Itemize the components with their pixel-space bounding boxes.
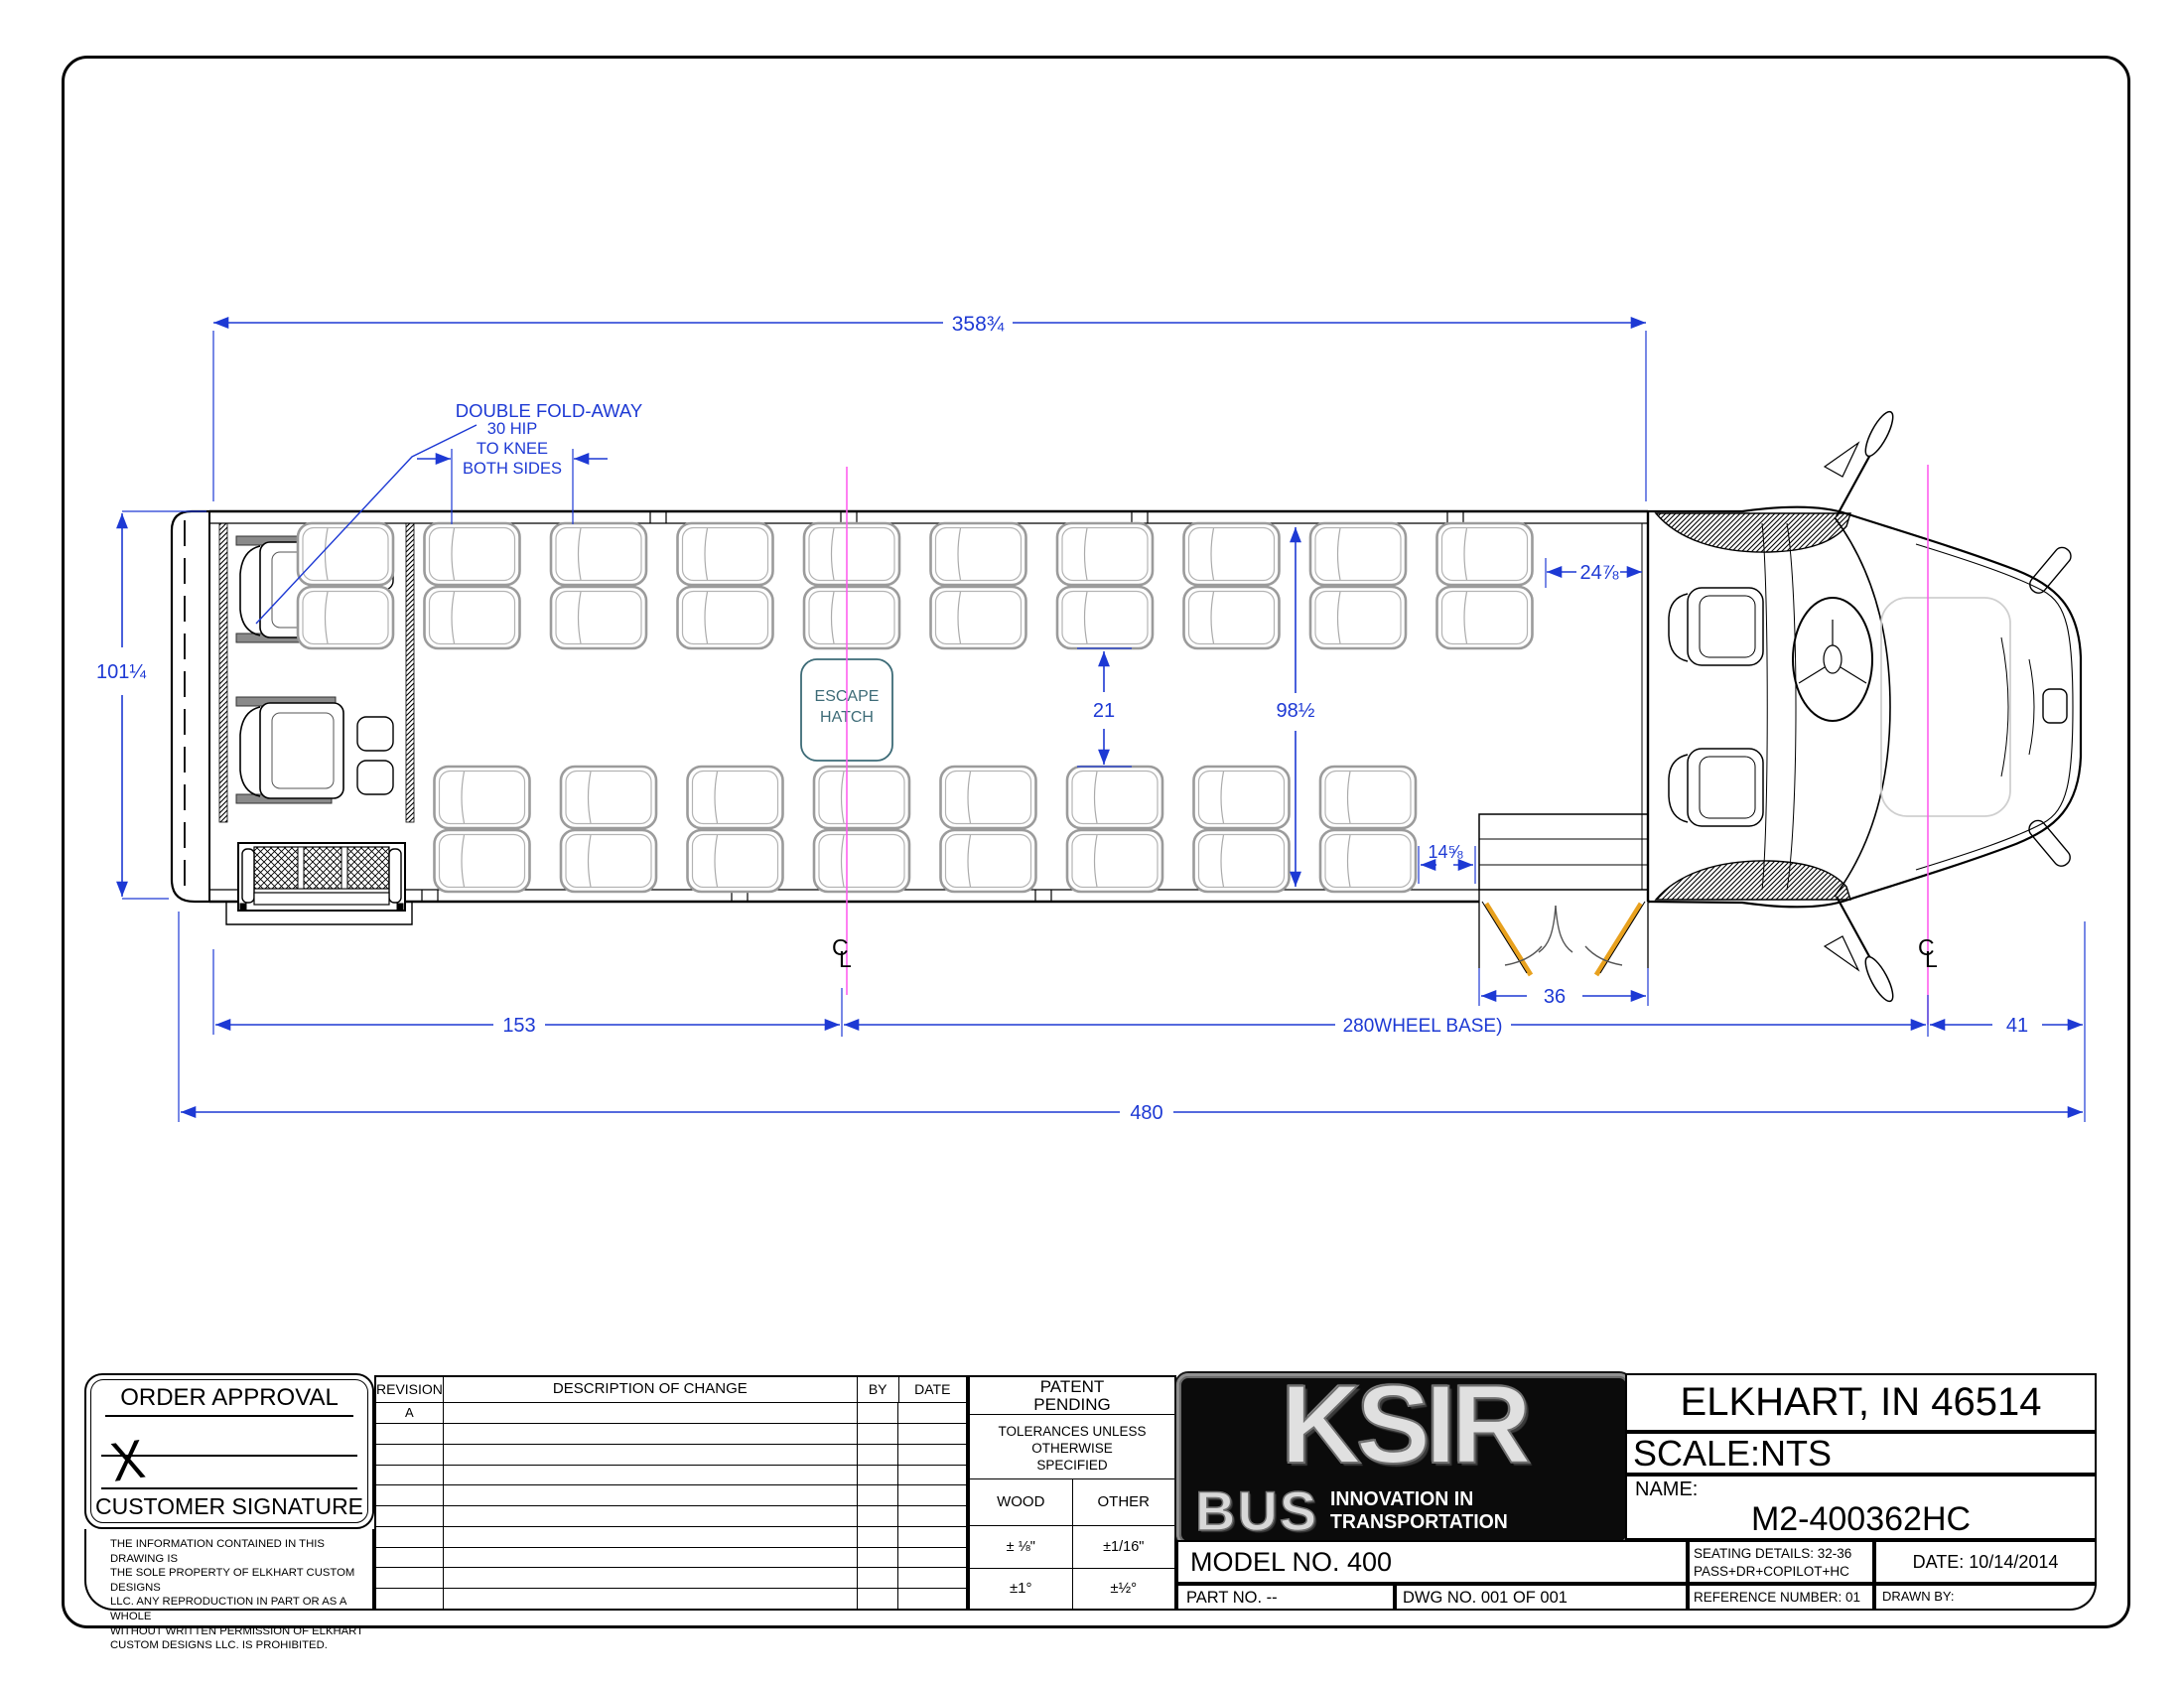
revision-table-header: REVISION DESCRIPTION OF CHANGE BY DATE [376, 1377, 966, 1403]
dim-body-length: 358¾ [952, 313, 1005, 336]
revision-row [376, 1527, 966, 1548]
passenger-seat-unit [1437, 523, 1533, 648]
signature-line [105, 1415, 353, 1417]
revision-cell [444, 1466, 858, 1485]
drawn-by-field: DRAWN BY: [1874, 1584, 2097, 1611]
revision-cell [376, 1445, 444, 1465]
dim-door-width: 36 [1544, 986, 1566, 1008]
other-angle-tolerance: ±½° [1073, 1569, 1175, 1609]
securement-track [406, 523, 414, 822]
disclaimer-line: LLC. ANY REPRODUCTION IN PART OR AS A WH… [110, 1595, 368, 1623]
revision-cell [898, 1527, 966, 1547]
order-approval-inner-border: ORDER APPROVAL X CUSTOMER SIGNATURE [90, 1379, 368, 1523]
revision-cell [898, 1445, 966, 1465]
cl-symbol: L [1925, 946, 1938, 972]
revision-table: REVISION DESCRIPTION OF CHANGE BY DATE A [374, 1375, 968, 1611]
wood-length-tolerance: ± ⅛" [970, 1526, 1073, 1568]
revision-cell [898, 1485, 966, 1505]
seating-details-line: SEATING DETAILS: 32-36 [1694, 1545, 1872, 1563]
drawing-name-value: M2-400362HC [1627, 1500, 2095, 1539]
ksir-bus-text: BUS [1195, 1478, 1318, 1543]
passenger-seat-unit [1057, 523, 1153, 648]
dim-overall-length: 480 [1130, 1102, 1162, 1124]
passenger-seat-unit [1194, 767, 1290, 892]
scale-field: SCALE:NTS [1625, 1432, 2097, 1475]
tolerance-line: TOLERANCES UNLESS [970, 1423, 1174, 1440]
revision-header-cell: DESCRIPTION OF CHANGE [444, 1377, 858, 1402]
revision-cell [444, 1548, 858, 1568]
tolerance-line: SPECIFIED [970, 1457, 1174, 1474]
revision-cell [376, 1589, 444, 1609]
seating-details: SEATING DETAILS: 32-36 PASS+DR+COPILOT+H… [1688, 1540, 1874, 1584]
ksir-brand-text: KSIR [1179, 1360, 1628, 1488]
revision-cell [858, 1466, 899, 1485]
cab-fairing-hatch [1656, 861, 1850, 900]
revision-cell [444, 1403, 858, 1423]
signature-line [101, 1487, 357, 1489]
rear-bumper [172, 511, 209, 902]
front-handle [2043, 689, 2067, 723]
revision-rows: A [376, 1403, 966, 1609]
revision-cell [858, 1445, 899, 1465]
wood-angle-tolerance: ±1° [970, 1569, 1073, 1609]
revision-cell [444, 1485, 858, 1505]
revision-cell [376, 1485, 444, 1505]
label-hip-to-knee: 30 HIP [487, 420, 537, 438]
signature-x-mark: X [107, 1427, 149, 1494]
centerline-symbols: C L C L [832, 934, 1938, 972]
passenger-seat-unit [804, 523, 899, 648]
revision-cell [898, 1466, 966, 1485]
passenger-seat-unit [551, 523, 646, 648]
tolerances-heading: TOLERANCES UNLESS OTHERWISE SPECIFIED [970, 1415, 1174, 1479]
other-length-tolerance: ±1/16" [1073, 1526, 1175, 1568]
revision-cell [898, 1403, 966, 1423]
disclaimer-note: THE INFORMATION CONTAINED IN THIS DRAWIN… [84, 1529, 374, 1611]
order-approval-title: ORDER APPROVAL [91, 1384, 367, 1412]
revision-cell [858, 1568, 899, 1588]
securement-track [219, 523, 227, 822]
passenger-seats [298, 523, 1533, 892]
tolerance-length-row: ± ⅛" ±1/16" [970, 1526, 1174, 1569]
revision-row [376, 1485, 966, 1506]
driver-seat [1669, 588, 1763, 665]
other-column-label: OTHER [1073, 1479, 1175, 1525]
revision-row: A [376, 1403, 966, 1424]
revision-row [376, 1424, 966, 1445]
cl-symbol: L [839, 946, 852, 972]
revision-cell [376, 1466, 444, 1485]
side-mirror [1825, 897, 1898, 1005]
revision-header-cell: BY [858, 1377, 899, 1402]
revision-header-cell: REVISION [376, 1377, 444, 1402]
revision-cell [858, 1506, 899, 1526]
passenger-seat-unit [931, 523, 1026, 648]
cab-outline [1648, 507, 2081, 908]
label-hip-to-knee: TO KNEE [477, 440, 548, 458]
revision-row [376, 1445, 966, 1466]
dim-wheelbase: 280WHEEL BASE) [1343, 1016, 1503, 1037]
passenger-seat-unit [1310, 523, 1406, 648]
passenger-seat-unit [425, 523, 520, 648]
revision-cell [376, 1424, 444, 1444]
revision-cell [444, 1424, 858, 1444]
door-swing-arcs [1505, 906, 1622, 965]
passenger-seat-unit [678, 523, 773, 648]
disclaimer-line: WITHOUT WRITTEN PERMISSION OF ELKHART [110, 1624, 368, 1639]
passenger-seat-unit [435, 767, 530, 892]
name-field: NAME: M2-400362HC [1625, 1475, 2097, 1540]
cab-fairing-hatch [1656, 513, 1850, 552]
revision-row [376, 1466, 966, 1486]
reference-number: REFERENCE NUMBER: 01 [1688, 1584, 1874, 1611]
patent-line: PENDING [970, 1396, 1174, 1414]
revision-cell [444, 1445, 858, 1465]
passenger-seat-unit [298, 523, 393, 648]
revision-row [376, 1568, 966, 1589]
entry-door [1479, 814, 1648, 975]
passenger-seat-unit [1184, 523, 1280, 648]
customer-signature-label: CUSTOMER SIGNATURE [91, 1493, 367, 1520]
name-label: NAME: [1635, 1478, 1698, 1501]
revision-cell [376, 1527, 444, 1547]
tolerance-columns: WOOD OTHER [970, 1479, 1174, 1526]
steering-wheel [1793, 598, 1872, 721]
revision-row [376, 1506, 966, 1527]
passenger-seat-unit [1067, 767, 1162, 892]
revision-cell [376, 1548, 444, 1568]
copilot-seat [1669, 749, 1763, 826]
label-double-fold-away: DOUBLE FOLD-AWAY [456, 400, 642, 421]
date-field: DATE: 10/14/2014 [1874, 1540, 2097, 1584]
ksir-logo: KSIR BUS INNOVATION IN TRANSPORTATION [1176, 1373, 1631, 1546]
revision-cell [898, 1548, 966, 1568]
tolerance-angle-row: ±1° ±½° [970, 1569, 1174, 1609]
part-number: PART NO. -- [1176, 1584, 1395, 1611]
revision-cell [898, 1424, 966, 1444]
disclaimer-line: THE SOLE PROPERTY OF ELKHART CUSTOM DESI… [110, 1566, 368, 1595]
revision-row [376, 1548, 966, 1569]
tagline-line: TRANSPORTATION [1330, 1510, 1508, 1533]
side-mirror [1825, 408, 1898, 516]
dim-rear-width: 101¼ [96, 661, 146, 683]
label-hip-to-knee: BOTH SIDES [463, 460, 562, 478]
revision-cell [858, 1589, 899, 1609]
wheelchair-lift [238, 843, 405, 911]
drawing-sheet: ESCAPE HATCH [0, 0, 2184, 1688]
disclaimer-line: CUSTOM DESIGNS LLC. IS PROHIBITED. [110, 1638, 368, 1653]
dimension-lines [122, 323, 2085, 1122]
dim-rear-overhang: 153 [502, 1015, 535, 1037]
revision-row [376, 1589, 966, 1609]
revision-cell [858, 1527, 899, 1547]
revision-cell [858, 1485, 899, 1505]
revision-cell: A [376, 1403, 444, 1423]
company-city: ELKHART, IN 46514 [1625, 1373, 2097, 1432]
model-number: MODEL NO. 400 [1176, 1540, 1688, 1584]
order-approval-box: ORDER APPROVAL X CUSTOMER SIGNATURE [84, 1373, 374, 1529]
dim-aisle: 21 [1093, 700, 1115, 722]
passenger-seat-unit [561, 767, 656, 892]
dim-front-gap: 24⅞ [1580, 562, 1619, 584]
revision-cell [444, 1568, 858, 1588]
tolerance-line: OTHERWISE [970, 1440, 1174, 1457]
dim-seat-to-door: 14⅝ [1428, 842, 1463, 862]
passenger-seat-unit [1320, 767, 1416, 892]
revision-cell [376, 1506, 444, 1526]
revision-cell [858, 1403, 899, 1423]
bus-floor-plan: ESCAPE HATCH [0, 0, 2184, 1331]
dwg-number: DWG NO. 001 OF 001 [1395, 1584, 1688, 1611]
passenger-seat-unit [688, 767, 783, 892]
revision-cell [444, 1527, 858, 1547]
revision-cell [898, 1568, 966, 1588]
wheelchair-position [236, 697, 393, 803]
passenger-seat-unit [941, 767, 1036, 892]
revision-cell [858, 1548, 899, 1568]
revision-cell [898, 1589, 966, 1609]
hood-line [1916, 544, 2073, 870]
revision-cell [898, 1506, 966, 1526]
ksir-tagline: INNOVATION IN TRANSPORTATION [1330, 1487, 1508, 1533]
revision-cell [858, 1424, 899, 1444]
disclaimer-line: THE INFORMATION CONTAINED IN THIS DRAWIN… [110, 1537, 368, 1566]
revision-cell [376, 1568, 444, 1588]
passenger-seat-unit [814, 767, 909, 892]
seating-details-line: PASS+DR+COPILOT+HC [1694, 1563, 1872, 1581]
revision-header-cell: DATE [899, 1377, 967, 1402]
patent-tolerance-block: PATENT PENDING TOLERANCES UNLESS OTHERWI… [968, 1375, 1176, 1611]
patent-line: PATENT [970, 1378, 1174, 1396]
wood-column-label: WOOD [970, 1479, 1073, 1525]
revision-cell [444, 1506, 858, 1526]
truck-cab [1648, 408, 2081, 1005]
dim-interior: 98½ [1277, 700, 1315, 722]
patent-pending: PATENT PENDING [970, 1377, 1174, 1415]
revision-cell [444, 1589, 858, 1609]
tagline-line: INNOVATION IN [1330, 1487, 1508, 1510]
dim-front-overhang: 41 [2006, 1015, 2028, 1037]
